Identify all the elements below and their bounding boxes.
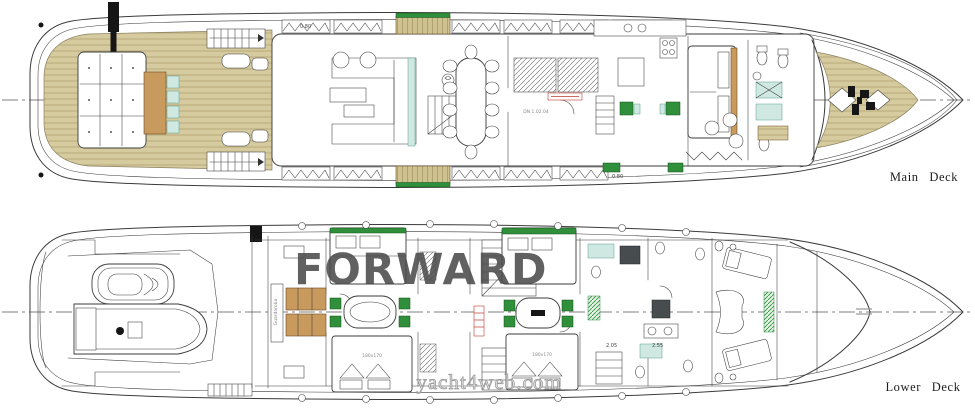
aft-stool xyxy=(167,91,179,103)
armchair xyxy=(333,52,349,68)
stern-cleat xyxy=(39,23,44,28)
galley-chair xyxy=(666,102,680,115)
cabin-chair xyxy=(504,316,515,327)
deck-chair xyxy=(222,132,250,146)
aft-stool xyxy=(167,106,179,118)
wardrobe-label: Guardaroba xyxy=(273,298,279,325)
aft-deck xyxy=(44,2,272,171)
bath-cabinet xyxy=(758,126,788,140)
toilet xyxy=(592,266,601,278)
cabin-chair xyxy=(399,298,410,309)
sink xyxy=(753,72,761,80)
side-stairs-starboard xyxy=(207,152,265,171)
crew-seat xyxy=(716,290,744,334)
height-mark: 2.55 xyxy=(652,343,663,349)
toilet xyxy=(715,241,723,251)
cabin-chair xyxy=(562,300,573,311)
bed-size-label: 180x170 xyxy=(362,353,382,359)
height-mark: 0.80 xyxy=(300,24,311,30)
mid-stairs xyxy=(596,352,622,384)
forward-watermark: FORWARD xyxy=(294,245,548,295)
main-deck-plan: DN 1.02.04 xyxy=(2,2,973,187)
toilet xyxy=(778,54,788,68)
sink xyxy=(730,374,736,380)
shower xyxy=(588,244,614,258)
cabin-chair xyxy=(330,316,341,327)
wardrobe xyxy=(286,314,326,336)
stern-stairs xyxy=(208,384,252,396)
pantry-cabinet xyxy=(514,58,556,92)
boarding-gate-bottom xyxy=(396,166,450,187)
toilet xyxy=(757,51,767,65)
chair xyxy=(729,134,743,148)
shower-box xyxy=(652,300,670,318)
storage-annotation: DN 1.02.04 xyxy=(523,109,549,115)
tender-garage xyxy=(68,226,262,396)
deck-chair xyxy=(222,54,250,68)
cabin-chair xyxy=(562,316,573,327)
aft-stool xyxy=(167,76,179,88)
height-mark: 2.05 xyxy=(606,343,617,349)
cabin-chair xyxy=(399,316,410,327)
toilet xyxy=(636,366,645,378)
pillow xyxy=(718,52,729,88)
forepeak-bulkhead xyxy=(790,242,870,382)
stern-cleat xyxy=(39,173,44,178)
bed-size-label: 180x170 xyxy=(532,352,552,358)
cabin-wardrobe xyxy=(420,344,436,372)
coffee-table xyxy=(330,88,366,102)
green-locker xyxy=(764,292,774,332)
sink xyxy=(730,244,736,250)
sink xyxy=(648,327,656,335)
main-deck-label: Main Deck xyxy=(890,170,958,184)
aft-stool xyxy=(167,121,179,133)
mast xyxy=(108,2,119,32)
toilet xyxy=(684,360,693,372)
cabin-table xyxy=(344,296,396,328)
tender-console xyxy=(128,322,142,338)
height-mark: 0.80 xyxy=(612,174,623,180)
site-watermark: yacht4web.com xyxy=(416,370,561,394)
green-locker xyxy=(588,296,600,320)
shower-box xyxy=(620,246,640,264)
cabin-chair xyxy=(504,300,515,311)
toilet xyxy=(656,242,665,254)
pantry-cabinet xyxy=(558,58,598,92)
lower-deck-label: Lower Deck xyxy=(885,380,960,394)
cabin-chair xyxy=(330,298,341,309)
sink xyxy=(624,24,632,32)
toilet xyxy=(715,373,723,383)
jet-ski xyxy=(92,264,174,304)
shower xyxy=(756,104,782,120)
chair xyxy=(705,121,719,135)
chair xyxy=(723,113,737,127)
tender-boat xyxy=(74,304,207,354)
boarding-gate-top xyxy=(396,13,450,34)
coffee-table xyxy=(344,105,374,117)
armchair xyxy=(360,52,376,68)
side-stairs-port xyxy=(207,29,265,48)
aft-table xyxy=(144,72,166,134)
stern-step-top xyxy=(62,240,180,254)
deck-chair xyxy=(252,58,268,70)
tender-wheel xyxy=(116,327,124,335)
sink xyxy=(664,327,672,335)
salon-sideboard xyxy=(408,58,415,146)
sink xyxy=(638,24,646,32)
lower-bathrooms: 2.05 2.55 xyxy=(588,242,705,384)
galley-table xyxy=(618,58,644,86)
toilet xyxy=(696,248,705,260)
dining-table xyxy=(456,58,486,146)
deck-plans-svg: DN 1.02.04 xyxy=(0,0,975,410)
deck-chair xyxy=(252,130,268,142)
galley-stairs xyxy=(596,96,614,134)
galley-chair xyxy=(620,102,633,115)
stern-step-bottom xyxy=(62,372,180,386)
stove xyxy=(660,38,677,58)
sunpad xyxy=(78,52,146,148)
yacht-deck-plan-canvas: DN 1.02.04 xyxy=(0,0,975,410)
